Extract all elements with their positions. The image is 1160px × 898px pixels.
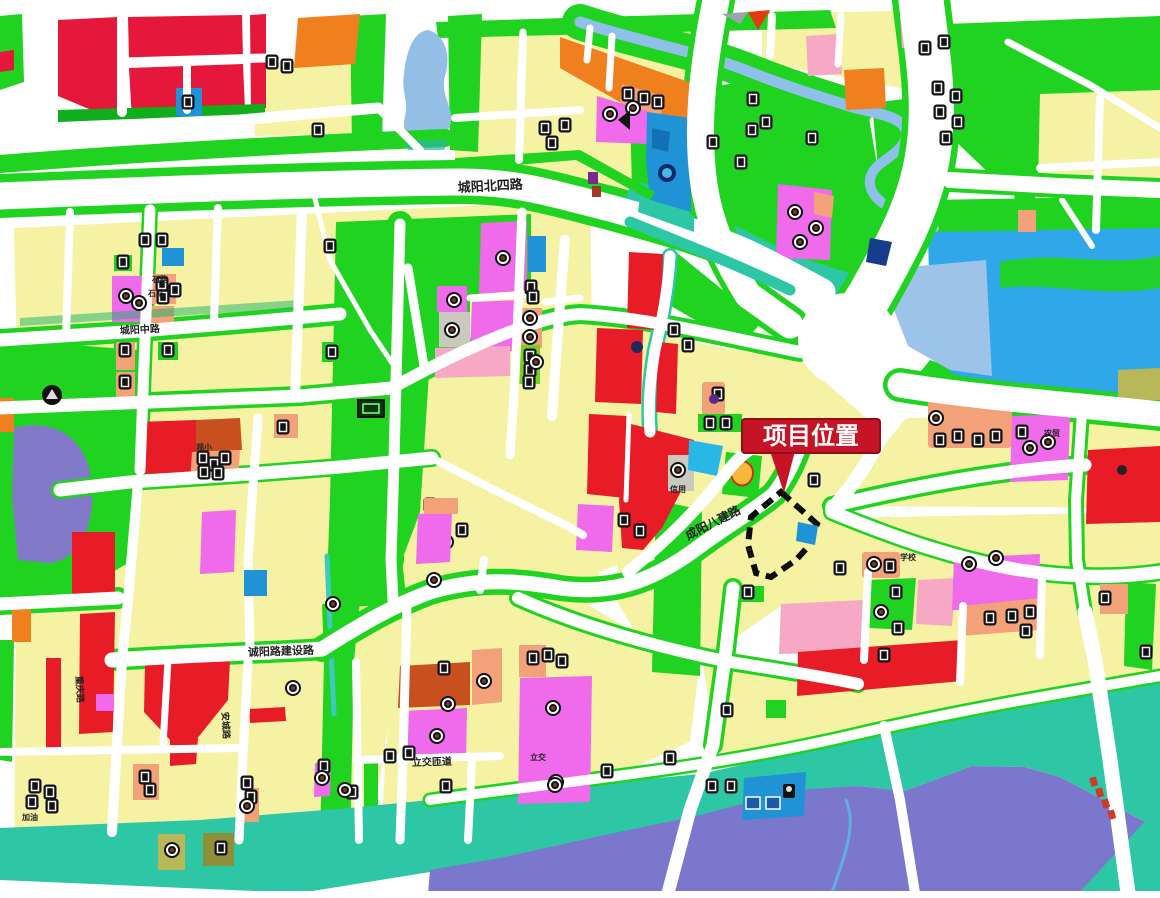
svg-text:农贸: 农贸 [1043,428,1060,438]
svg-text:石站: 石站 [147,288,164,298]
svg-text:项目位置: 项目位置 [763,422,859,450]
svg-text:加油: 加油 [21,812,38,822]
svg-text:安城路: 安城路 [220,712,232,741]
svg-text:信用: 信用 [670,484,686,494]
svg-text:立交: 立交 [530,752,546,762]
svg-text:观小: 观小 [196,442,212,452]
svg-text:重庆路: 重庆路 [74,676,86,705]
svg-text:学校: 学校 [900,552,917,562]
svg-text:石购: 石购 [151,274,168,284]
